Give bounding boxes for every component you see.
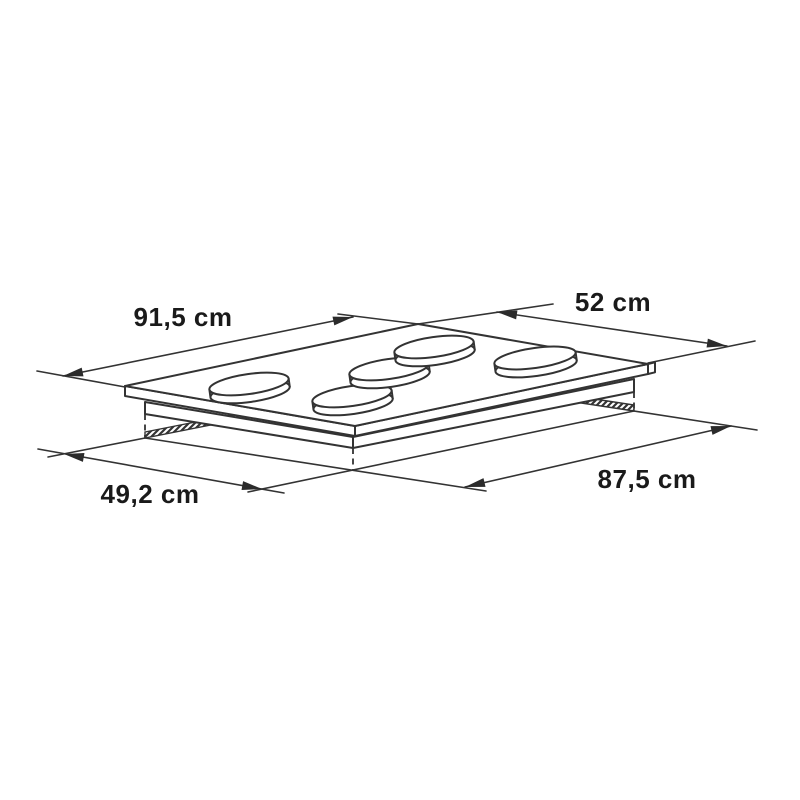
top-panel-corner-cap <box>648 362 655 374</box>
extension-line <box>634 411 757 430</box>
dimension-label-top-depth: 52 cm <box>575 287 651 317</box>
dimension-label-top-length: 91,5 cm <box>134 302 233 332</box>
extension-line <box>648 341 755 363</box>
dimension-label-cutout-length: 87,5 cm <box>598 464 697 494</box>
extension-line <box>338 314 418 324</box>
dimension-label-cutout-depth: 49,2 cm <box>101 479 200 509</box>
extension-line <box>418 304 553 324</box>
dimension-cutout-depth: 49,2 cm <box>38 449 284 509</box>
product-dimension-page: 91,5 cm 52 cm 49,2 cm 87,5 cm <box>0 0 800 800</box>
dimension-cutout-length: 87,5 cm <box>464 422 732 494</box>
cooktop-dimension-diagram: 91,5 cm 52 cm 49,2 cm 87,5 cm <box>0 0 800 800</box>
dimension-line <box>497 312 727 346</box>
